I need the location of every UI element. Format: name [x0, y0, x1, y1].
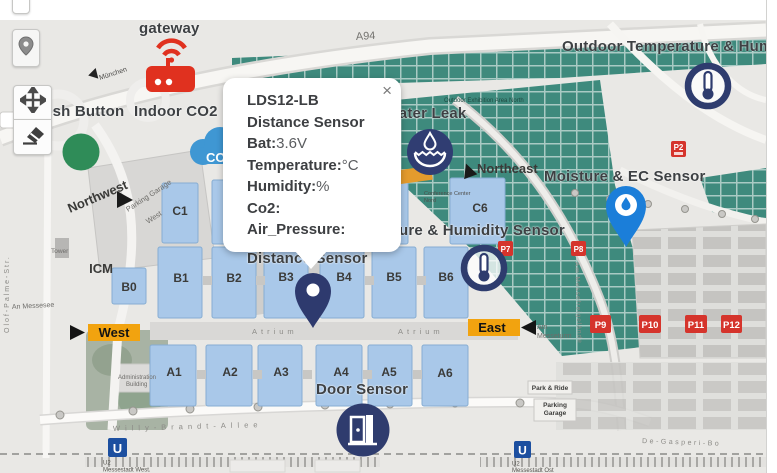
ubahn-west-name: Messestadt West.	[103, 468, 151, 473]
popup-tail	[294, 250, 328, 269]
hall-label-b5: B5	[386, 270, 402, 284]
door-sensor-marker[interactable]	[337, 404, 390, 457]
parking-garage-label-1: Parking	[543, 402, 567, 409]
popup-field-air-pressure: Air_Pressure:	[247, 219, 391, 241]
gateway-label: gateway	[139, 20, 200, 37]
eraser-icon	[20, 123, 46, 152]
door-leaf-icon	[366, 415, 373, 444]
partial-top-button[interactable]	[12, 0, 30, 14]
popup-title: LDS12-LB	[247, 90, 391, 112]
outdoor-exhibition-north-label: Outdoor Exhibition Area North	[444, 98, 524, 104]
ubahn-sign-ost: U	[518, 444, 527, 458]
atrium-label-1: Atrium	[252, 327, 298, 336]
west-label: West	[99, 325, 130, 340]
move-arrows-icon	[20, 87, 46, 118]
outdoor-thermometer-marker[interactable]	[688, 66, 728, 106]
popup-subtitle: Distance Sensor	[247, 112, 391, 134]
hall-label-b2: B2	[226, 271, 242, 285]
ubahn-west-line: U2	[103, 461, 111, 467]
parking-sign-p10: P10	[642, 320, 659, 331]
temp-humidity-thermometer-marker[interactable]	[464, 248, 504, 288]
hall-label-icm: ICM	[89, 261, 113, 276]
rail-platform-east	[480, 457, 766, 467]
olof-palme-str-label: Olof-Palme-Str.	[4, 255, 11, 333]
parking-sign-p11: P11	[688, 320, 705, 331]
hall-label-c6: C6	[472, 201, 488, 215]
ubahn-ost-line: U2	[512, 462, 520, 468]
atrium-corridor	[150, 322, 518, 340]
conference-center-label-1: Conference Center	[424, 191, 471, 197]
parking-sign-p9: P9	[595, 320, 607, 331]
pan-move-button[interactable]	[13, 85, 52, 119]
administration-label-1: Administration	[118, 375, 156, 381]
parking-lot-east	[632, 224, 766, 358]
ubahn-sign-west: U	[113, 441, 122, 456]
map-stage: A94 München Parking Garage West Tower An…	[0, 0, 777, 473]
hall-label-a5: A5	[381, 365, 397, 379]
hall-label-a4: A4	[333, 365, 349, 379]
sensor-popup: × LDS12-LB Distance Sensor Bat:3.6V Temp…	[223, 78, 401, 252]
park-ride-label: Park & Ride	[532, 385, 569, 392]
push-button-marker[interactable]	[63, 134, 100, 171]
thermometer-icon	[481, 254, 488, 273]
tower-label: Tower	[51, 248, 69, 255]
atrium-label-2: Atrium	[398, 327, 444, 336]
app-root: { "popup": { "title": "LDS12-LB", "subti…	[0, 0, 777, 473]
locate-button[interactable]	[12, 29, 40, 67]
am-messeturm-label-1: Am	[537, 324, 548, 331]
northeast-label: Northeast	[477, 161, 538, 176]
ubahn-ost-name: Messestadt Ost	[512, 468, 554, 473]
hall-label-a2: A2	[222, 365, 238, 379]
am-messeturm-label-2: Messeturm	[537, 333, 572, 340]
parking-sign-p12: P12	[723, 320, 740, 331]
hall-label-b4: B4	[336, 270, 352, 284]
top-page-strip	[0, 0, 777, 20]
popup-field-co2: Co2:	[247, 198, 391, 220]
indoor-co2-label: Indoor CO2	[134, 103, 218, 120]
parking-sign-p2: P2	[674, 143, 684, 152]
hall-label-a6: A6	[437, 366, 453, 380]
parking-sign-p7: P7	[501, 245, 511, 254]
hall-label-a3: A3	[273, 365, 289, 379]
hall-label-b0: B0	[121, 280, 137, 294]
erase-button[interactable]	[13, 119, 52, 155]
thermometer-icon	[705, 72, 712, 91]
parking-garage-label-2: Garage	[544, 410, 567, 417]
outdoor-temp-humidity-label: Outdoor Temperature & Humidity Sensor	[562, 38, 777, 55]
east-label: East	[478, 320, 506, 335]
right-page-strip	[766, 0, 777, 473]
hall-label-b3: B3	[278, 270, 294, 284]
popup-field-humidity: Humidity:%	[247, 176, 391, 198]
location-pin-icon	[18, 36, 34, 61]
popup-close-icon[interactable]: ×	[382, 82, 392, 99]
hall-label-c1: C1	[172, 204, 188, 218]
parking-sign-p8: P8	[574, 245, 584, 254]
hall-label-b1: B1	[173, 271, 189, 285]
conference-center-label-2: Nord	[424, 198, 436, 204]
water-leak-marker[interactable]	[407, 129, 453, 175]
parking-lot-southeast	[556, 362, 766, 430]
hall-label-b6: B6	[438, 270, 454, 284]
highway-label: A94	[356, 30, 376, 43]
popup-field-battery: Bat:3.6V	[247, 133, 391, 155]
hall-label-a1: A1	[166, 365, 182, 379]
popup-field-temperature: Temperature:°C	[247, 155, 391, 177]
moisture-ec-label: Moisture & EC Sensor	[544, 168, 706, 185]
door-sensor-label: Door Sensor	[316, 381, 408, 398]
administration-label-2: Building	[126, 382, 147, 388]
